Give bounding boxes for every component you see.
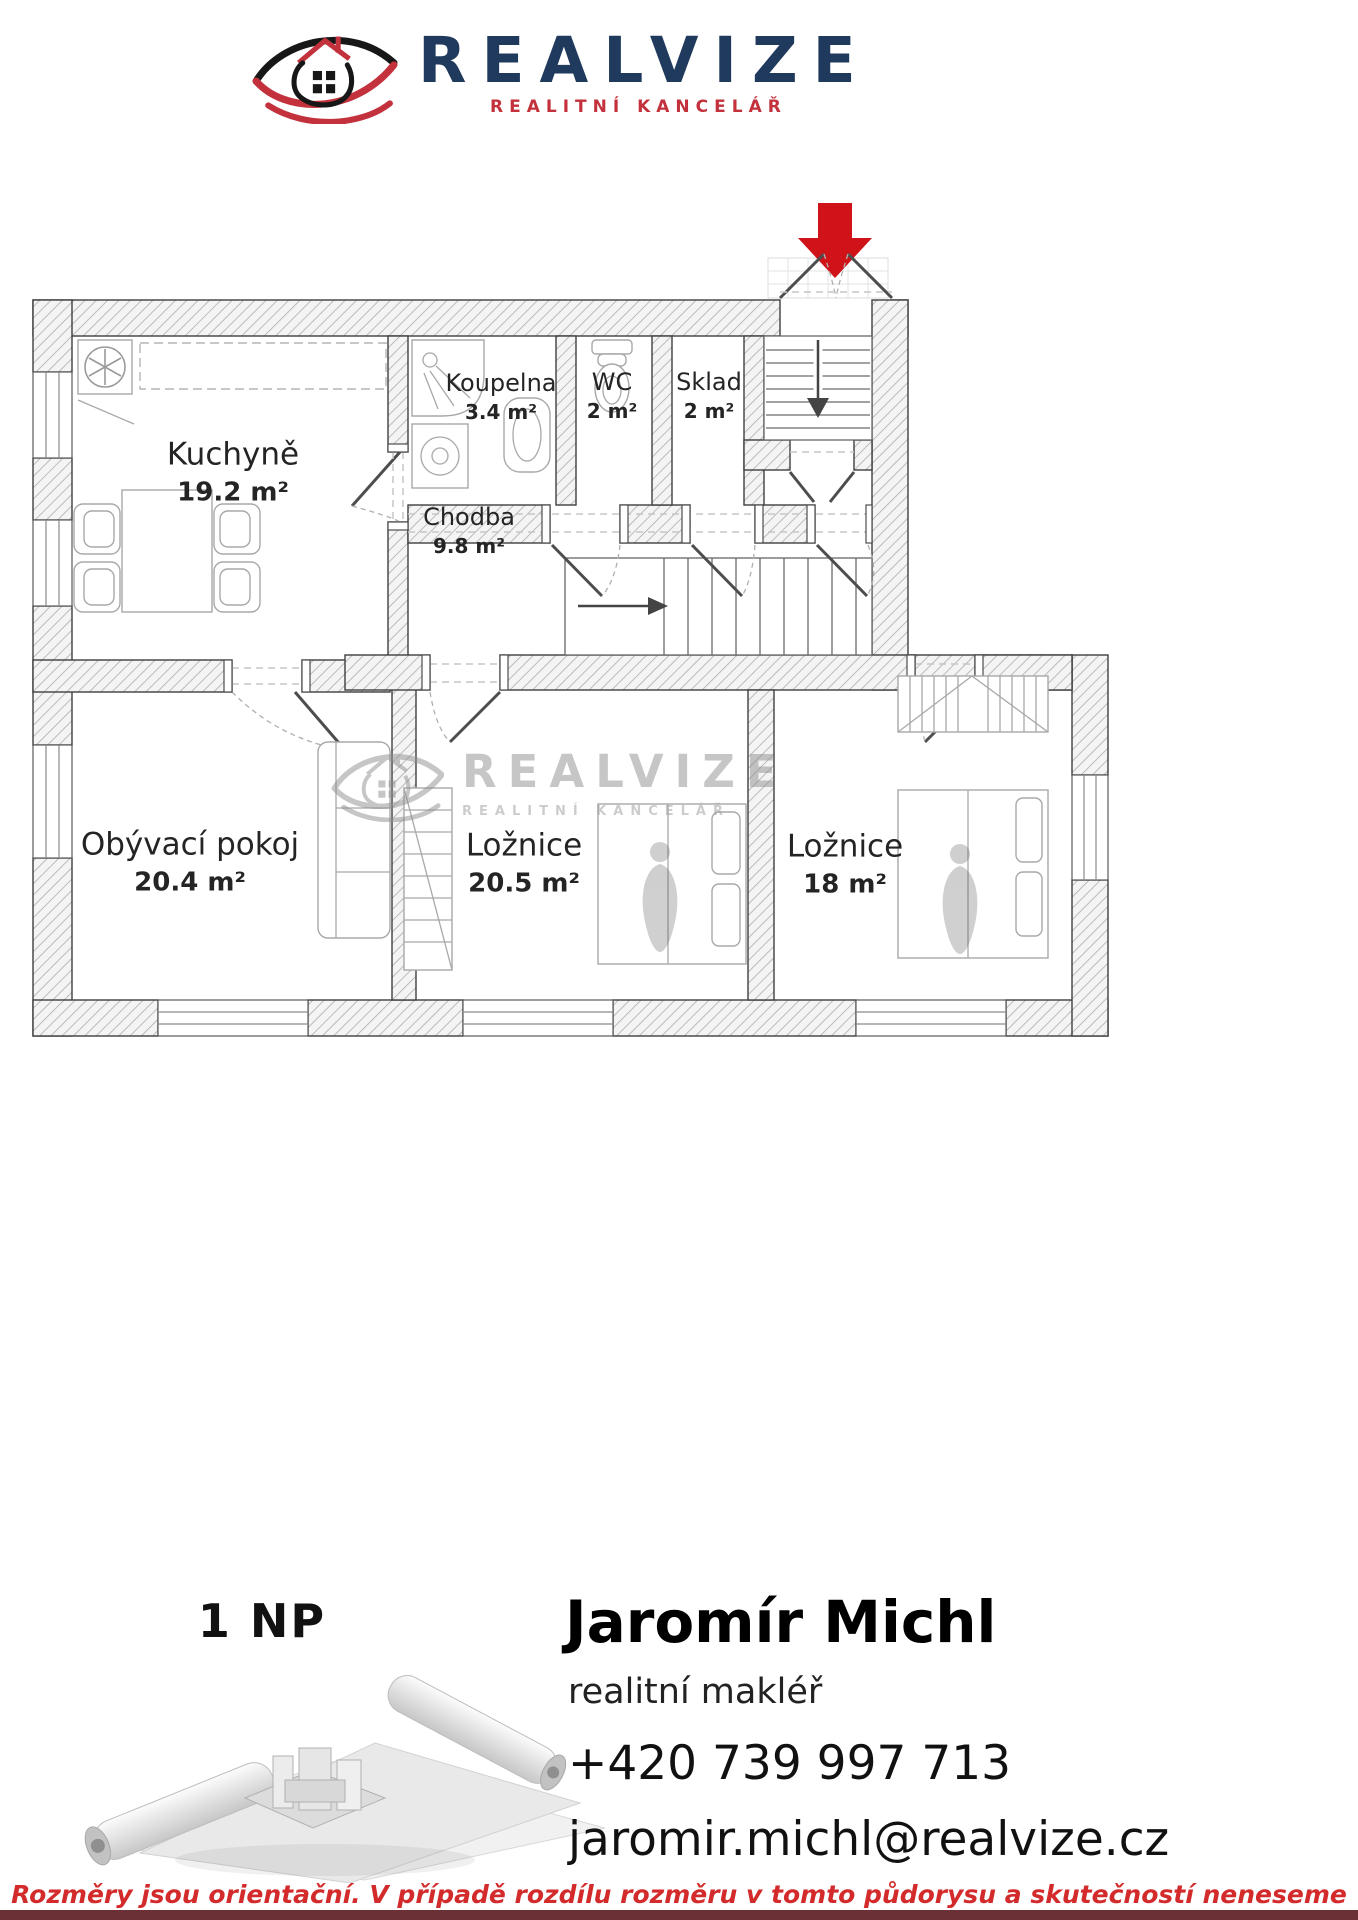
floorplan-drawing xyxy=(0,185,1358,1055)
realvize-eye-logo-icon xyxy=(248,22,400,124)
agent-role: realitní makléř xyxy=(568,1672,822,1712)
bottom-bar xyxy=(0,1910,1358,1920)
room-label-loznice-2: Ložnice18 m² xyxy=(787,830,903,901)
agent-email: jaromir.michl@realvize.cz xyxy=(568,1812,1169,1867)
entry-stairs xyxy=(764,336,872,440)
room-label-sklad: Sklad2 m² xyxy=(676,369,742,423)
bedroom2-furniture xyxy=(898,676,1048,958)
agent-phone: +420 739 997 713 xyxy=(568,1736,1011,1791)
agent-name: Jaromír Michl xyxy=(565,1588,996,1656)
room-label-koupelna: Koupelna3.4 m² xyxy=(445,370,556,424)
floor-label: 1 NP xyxy=(198,1594,326,1648)
room-label-wc: WC2 m² xyxy=(587,369,637,423)
kitchen-table xyxy=(122,490,212,612)
sofa xyxy=(318,742,390,938)
room-label-kuchyne: Kuchyně19.2 m² xyxy=(167,438,299,509)
room-label-obyvaci-pokoj: Obývací pokoj20.4 m² xyxy=(81,828,299,899)
floorplan-page: REALVIZE REALITNÍ KANCELÁŘ xyxy=(0,0,1358,1920)
blueprints-image xyxy=(45,1648,625,1883)
brand-name: REALVIZE xyxy=(418,24,871,97)
brand-subtitle: REALITNÍ KANCELÁŘ xyxy=(490,97,787,117)
living-room-furniture xyxy=(318,742,390,938)
room-label-loznice-1: Ložnice20.5 m² xyxy=(466,829,582,900)
clothes-rail xyxy=(898,676,1048,732)
room-label-chodba: Chodba9.8 m² xyxy=(423,504,515,558)
